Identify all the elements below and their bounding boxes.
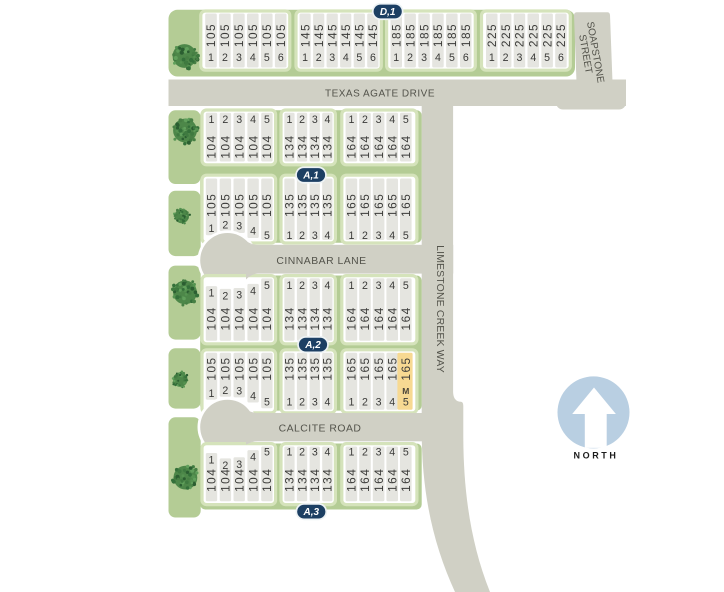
- svg-text:225: 225: [540, 23, 554, 47]
- svg-text:165: 165: [358, 356, 372, 380]
- svg-text:4: 4: [250, 52, 256, 64]
- svg-text:2: 2: [362, 230, 368, 242]
- svg-text:A,2: A,2: [304, 340, 321, 351]
- svg-text:104: 104: [246, 306, 260, 330]
- svg-text:1: 1: [348, 230, 354, 242]
- svg-text:105: 105: [232, 193, 246, 217]
- svg-text:164: 164: [345, 306, 359, 330]
- svg-text:1: 1: [209, 388, 215, 400]
- svg-text:165: 165: [345, 193, 359, 217]
- svg-text:1: 1: [348, 397, 354, 409]
- svg-text:3: 3: [236, 290, 242, 302]
- svg-text:165: 165: [385, 356, 399, 380]
- svg-text:104: 104: [260, 468, 274, 492]
- svg-text:164: 164: [399, 134, 413, 158]
- svg-text:164: 164: [399, 468, 413, 492]
- svg-text:2: 2: [503, 52, 509, 64]
- svg-text:M: M: [402, 386, 409, 396]
- svg-text:185: 185: [403, 23, 417, 47]
- svg-text:104: 104: [219, 134, 233, 158]
- svg-text:3: 3: [421, 52, 427, 64]
- svg-text:164: 164: [385, 468, 399, 492]
- svg-text:105: 105: [246, 23, 260, 47]
- svg-text:104: 104: [219, 306, 233, 330]
- svg-text:145: 145: [312, 23, 326, 47]
- svg-text:105: 105: [246, 193, 260, 217]
- svg-text:105: 105: [219, 356, 233, 380]
- svg-text:4: 4: [324, 446, 330, 458]
- svg-text:3: 3: [517, 52, 523, 64]
- svg-text:2: 2: [362, 397, 368, 409]
- svg-text:105: 105: [232, 356, 246, 380]
- svg-text:104: 104: [232, 468, 246, 492]
- svg-text:4: 4: [530, 52, 536, 64]
- svg-text:1: 1: [302, 52, 308, 64]
- svg-text:225: 225: [527, 23, 541, 47]
- svg-text:105: 105: [218, 23, 232, 47]
- svg-text:5: 5: [264, 114, 270, 126]
- svg-text:165: 165: [358, 193, 372, 217]
- svg-text:TEXAS AGATE DRIVE: TEXAS AGATE DRIVE: [325, 88, 435, 99]
- svg-text:5: 5: [264, 230, 270, 242]
- svg-text:4: 4: [250, 452, 256, 464]
- svg-text:3: 3: [236, 114, 242, 126]
- svg-text:5: 5: [403, 280, 409, 292]
- svg-text:145: 145: [298, 23, 312, 47]
- svg-text:1: 1: [489, 52, 495, 64]
- svg-text:CINNABAR LANE: CINNABAR LANE: [276, 256, 366, 267]
- svg-text:5: 5: [264, 280, 270, 292]
- svg-text:3: 3: [312, 446, 318, 458]
- svg-text:2: 2: [299, 230, 305, 242]
- svg-text:6: 6: [558, 52, 564, 64]
- svg-text:134: 134: [321, 134, 335, 158]
- svg-text:3: 3: [312, 397, 318, 409]
- svg-text:3: 3: [312, 114, 318, 126]
- svg-text:225: 225: [554, 23, 568, 47]
- svg-text:1: 1: [209, 455, 215, 467]
- svg-text:6: 6: [278, 52, 284, 64]
- svg-text:2: 2: [222, 291, 228, 303]
- svg-text:104: 104: [205, 134, 219, 158]
- svg-text:164: 164: [358, 468, 372, 492]
- svg-text:1: 1: [209, 288, 215, 300]
- svg-text:5: 5: [264, 396, 270, 408]
- svg-text:105: 105: [232, 23, 246, 47]
- svg-text:104: 104: [232, 306, 246, 330]
- svg-text:1: 1: [348, 280, 354, 292]
- svg-text:1: 1: [393, 52, 399, 64]
- svg-text:2: 2: [299, 446, 305, 458]
- svg-text:134: 134: [321, 468, 335, 492]
- svg-text:185: 185: [431, 23, 445, 47]
- svg-text:3: 3: [376, 446, 382, 458]
- svg-text:164: 164: [358, 134, 372, 158]
- svg-text:3: 3: [312, 280, 318, 292]
- svg-text:185: 185: [445, 23, 459, 47]
- svg-text:105: 105: [246, 356, 260, 380]
- svg-text:3: 3: [236, 220, 242, 232]
- svg-text:3: 3: [329, 52, 335, 64]
- svg-text:4: 4: [324, 230, 330, 242]
- svg-text:3: 3: [376, 230, 382, 242]
- svg-text:D,1: D,1: [380, 7, 396, 18]
- svg-text:104: 104: [205, 468, 219, 492]
- svg-text:105: 105: [260, 356, 274, 380]
- svg-text:2: 2: [299, 114, 305, 126]
- svg-text:A,3: A,3: [303, 507, 320, 518]
- svg-text:1: 1: [209, 223, 215, 235]
- svg-text:2: 2: [362, 280, 368, 292]
- svg-text:3: 3: [236, 459, 242, 471]
- svg-text:105: 105: [274, 23, 288, 47]
- svg-text:105: 105: [260, 23, 274, 47]
- svg-text:3: 3: [236, 385, 242, 397]
- svg-text:134: 134: [321, 306, 335, 330]
- svg-text:1: 1: [348, 114, 354, 126]
- svg-text:6: 6: [463, 52, 469, 64]
- svg-text:145: 145: [325, 23, 339, 47]
- svg-text:1: 1: [348, 446, 354, 458]
- svg-text:4: 4: [324, 397, 330, 409]
- svg-text:185: 185: [417, 23, 431, 47]
- svg-text:145: 145: [339, 23, 353, 47]
- svg-text:165: 165: [399, 193, 413, 217]
- svg-text:5: 5: [403, 397, 409, 409]
- svg-text:164: 164: [358, 306, 372, 330]
- svg-text:135: 135: [321, 356, 335, 380]
- svg-text:1: 1: [286, 280, 292, 292]
- svg-text:105: 105: [219, 193, 233, 217]
- svg-text:2: 2: [222, 52, 228, 64]
- svg-text:104: 104: [260, 306, 274, 330]
- svg-text:1: 1: [209, 114, 215, 126]
- svg-text:5: 5: [544, 52, 550, 64]
- svg-text:2: 2: [222, 114, 228, 126]
- svg-text:4: 4: [389, 446, 395, 458]
- svg-text:2: 2: [299, 280, 305, 292]
- svg-text:4: 4: [389, 280, 395, 292]
- svg-text:NORTH: NORTH: [574, 451, 619, 461]
- svg-text:105: 105: [205, 356, 219, 380]
- svg-text:3: 3: [376, 280, 382, 292]
- svg-text:5: 5: [403, 230, 409, 242]
- svg-text:165: 165: [385, 193, 399, 217]
- svg-text:2: 2: [316, 52, 322, 64]
- svg-text:164: 164: [399, 306, 413, 330]
- svg-text:1: 1: [286, 114, 292, 126]
- svg-text:164: 164: [372, 468, 386, 492]
- svg-text:5: 5: [356, 52, 362, 64]
- svg-text:CALCITE ROAD: CALCITE ROAD: [279, 423, 362, 434]
- svg-text:4: 4: [324, 114, 330, 126]
- svg-text:185: 185: [459, 23, 473, 47]
- svg-text:2: 2: [407, 52, 413, 64]
- svg-text:4: 4: [435, 52, 441, 64]
- svg-text:165: 165: [345, 356, 359, 380]
- svg-text:2: 2: [299, 397, 305, 409]
- svg-text:225: 225: [499, 23, 513, 47]
- svg-text:104: 104: [260, 134, 274, 158]
- svg-text:1: 1: [208, 52, 214, 64]
- svg-text:164: 164: [345, 134, 359, 158]
- svg-text:6: 6: [370, 52, 376, 64]
- svg-text:2: 2: [362, 114, 368, 126]
- svg-text:185: 185: [389, 23, 403, 47]
- svg-text:3: 3: [312, 230, 318, 242]
- svg-text:164: 164: [372, 306, 386, 330]
- svg-text:165: 165: [399, 356, 413, 380]
- svg-text:4: 4: [389, 114, 395, 126]
- svg-text:5: 5: [449, 52, 455, 64]
- svg-text:5: 5: [264, 446, 270, 458]
- svg-text:165: 165: [372, 356, 386, 380]
- svg-text:145: 145: [353, 23, 367, 47]
- svg-text:225: 225: [485, 23, 499, 47]
- svg-text:104: 104: [246, 468, 260, 492]
- svg-text:4: 4: [250, 391, 256, 403]
- svg-text:2: 2: [222, 460, 228, 472]
- svg-text:225: 225: [513, 23, 527, 47]
- svg-text:1: 1: [286, 397, 292, 409]
- svg-text:164: 164: [372, 134, 386, 158]
- svg-text:5: 5: [403, 114, 409, 126]
- svg-text:5: 5: [264, 52, 270, 64]
- svg-text:2: 2: [222, 385, 228, 397]
- svg-text:164: 164: [385, 306, 399, 330]
- svg-text:104: 104: [232, 134, 246, 158]
- svg-text:165: 165: [372, 193, 386, 217]
- svg-text:145: 145: [366, 23, 380, 47]
- svg-text:2: 2: [222, 219, 228, 231]
- svg-text:104: 104: [205, 306, 219, 330]
- svg-text:LIMESTONE CREEK WAY: LIMESTONE CREEK WAY: [434, 245, 445, 373]
- svg-text:1: 1: [286, 230, 292, 242]
- svg-text:3: 3: [376, 397, 382, 409]
- svg-text:105: 105: [260, 193, 274, 217]
- svg-text:105: 105: [204, 23, 218, 47]
- svg-text:164: 164: [385, 134, 399, 158]
- svg-text:104: 104: [246, 134, 260, 158]
- svg-text:5: 5: [403, 446, 409, 458]
- svg-text:1: 1: [286, 446, 292, 458]
- svg-text:4: 4: [250, 225, 256, 237]
- svg-text:135: 135: [321, 193, 335, 217]
- svg-text:105: 105: [205, 193, 219, 217]
- svg-text:2: 2: [362, 446, 368, 458]
- svg-text:4: 4: [250, 114, 256, 126]
- svg-text:4: 4: [389, 230, 395, 242]
- svg-text:A,1: A,1: [302, 171, 319, 182]
- svg-text:3: 3: [376, 114, 382, 126]
- svg-text:4: 4: [324, 280, 330, 292]
- svg-text:4: 4: [389, 397, 395, 409]
- svg-text:164: 164: [345, 468, 359, 492]
- svg-text:3: 3: [236, 52, 242, 64]
- svg-text:4: 4: [250, 286, 256, 298]
- svg-text:4: 4: [343, 52, 349, 64]
